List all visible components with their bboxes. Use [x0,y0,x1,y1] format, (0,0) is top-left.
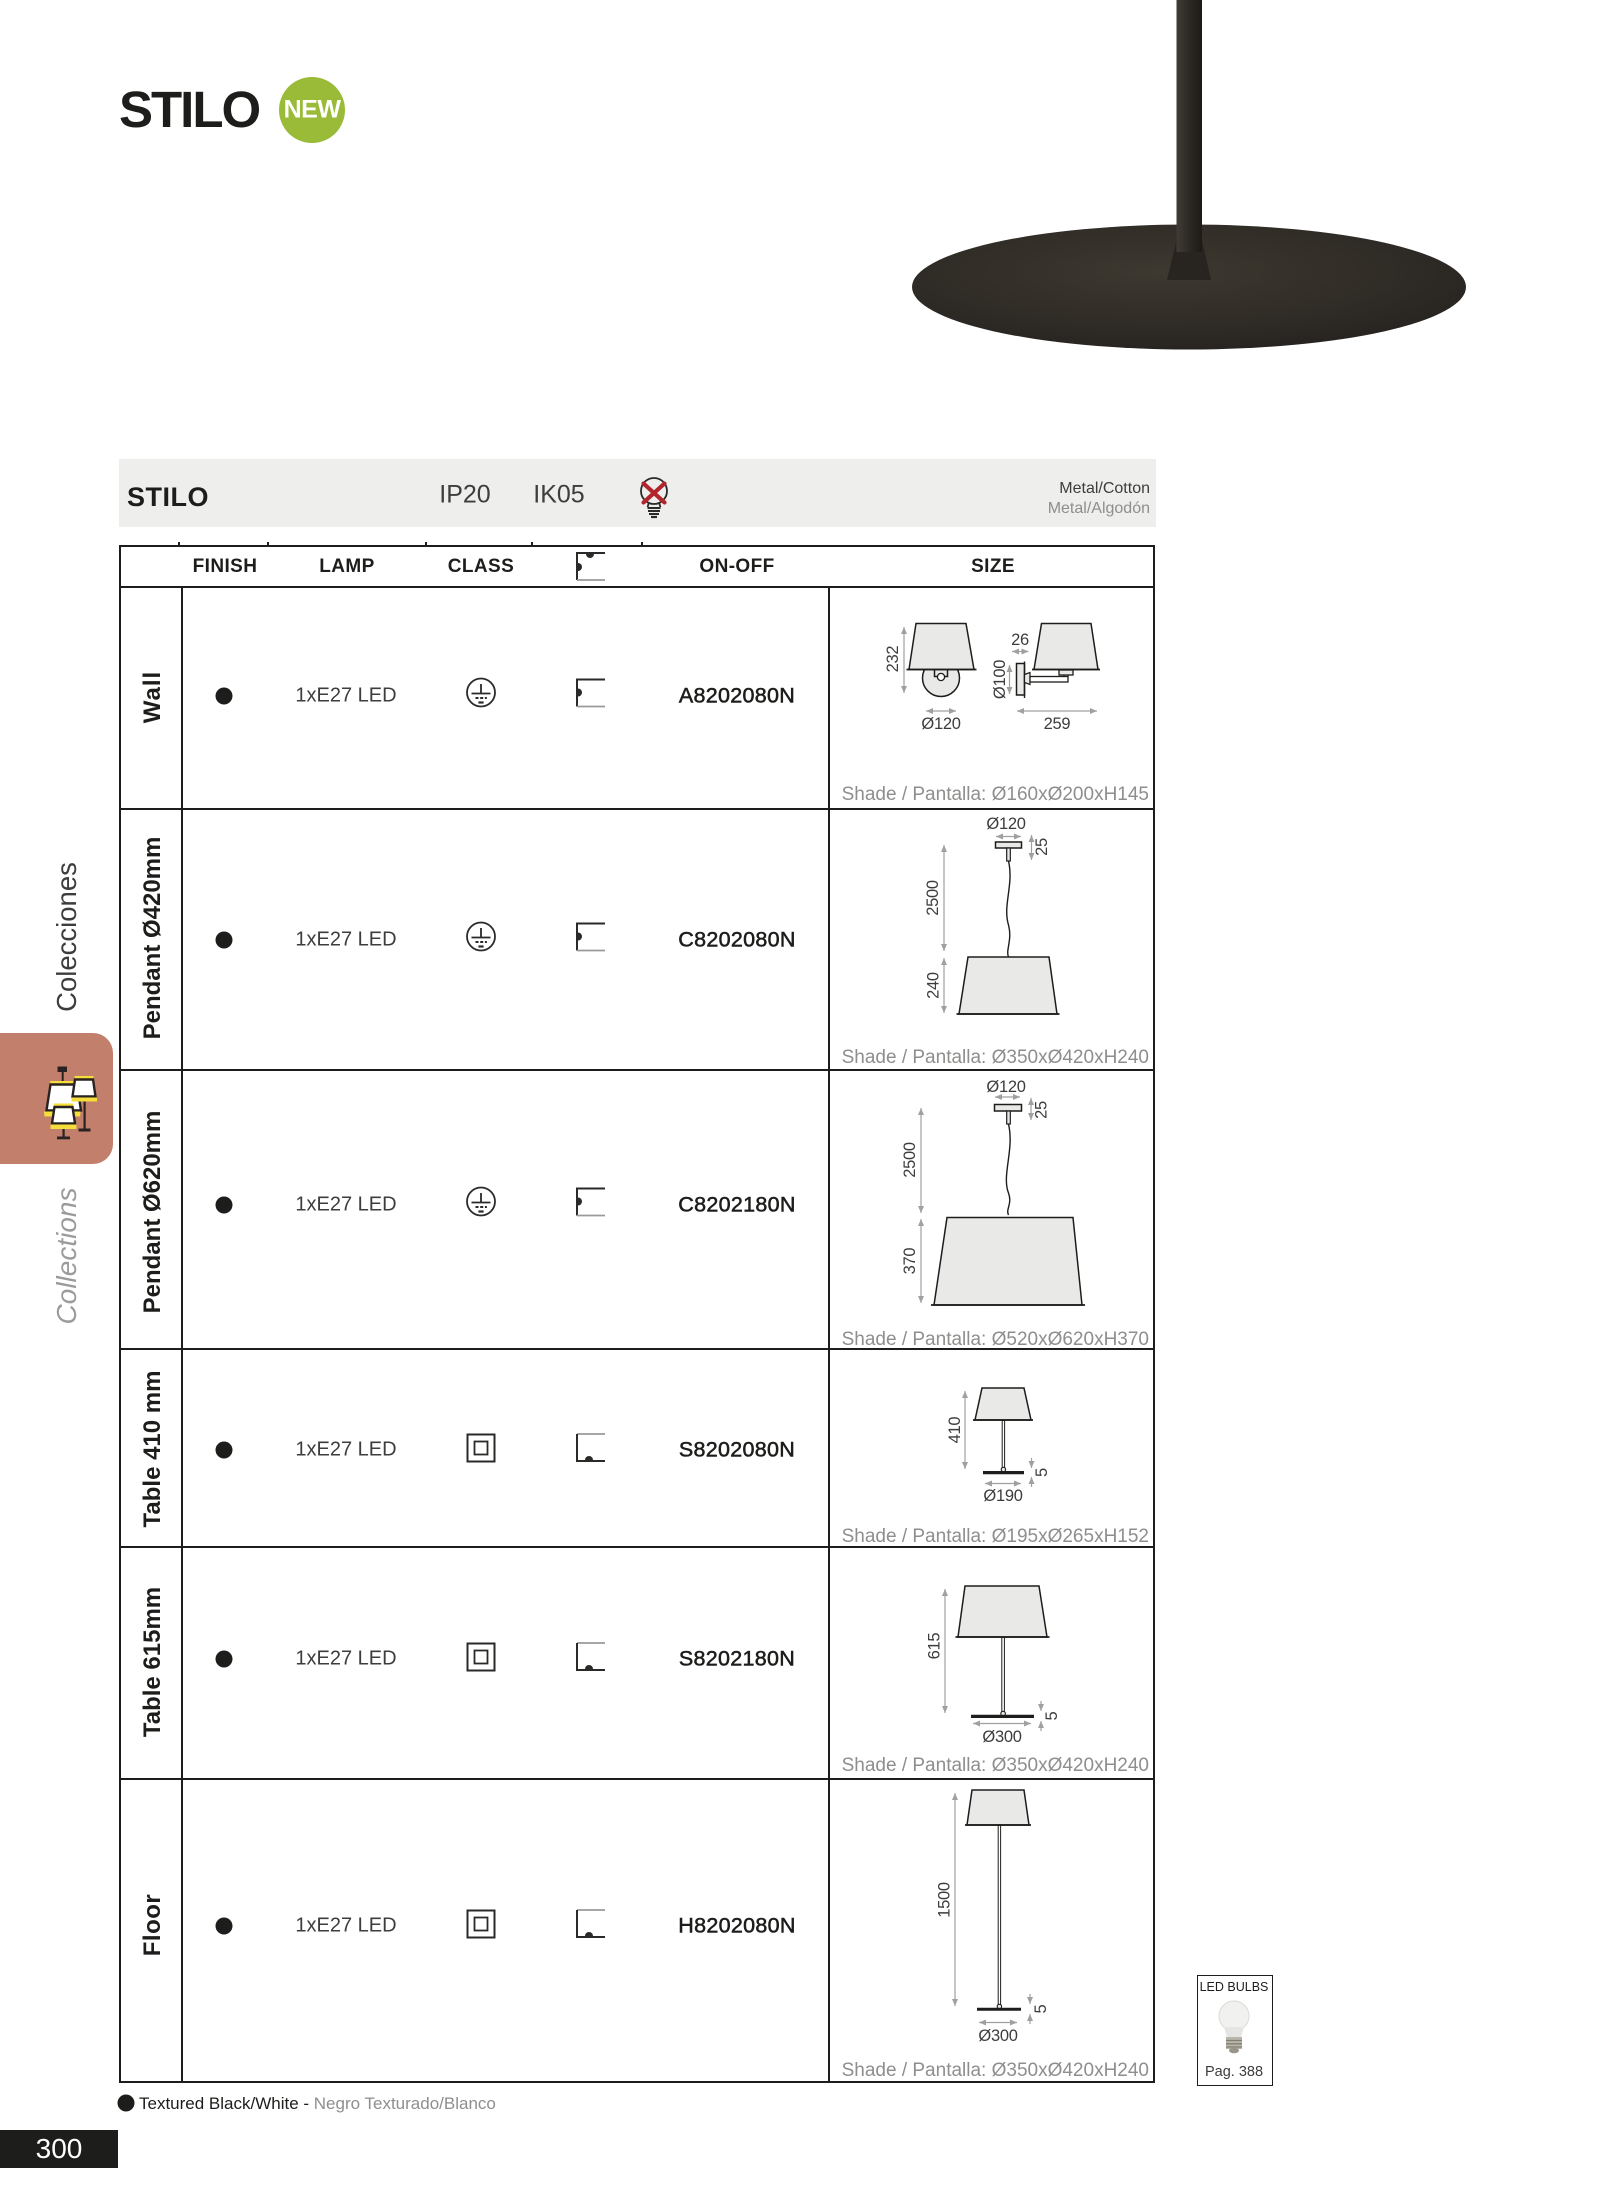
svg-text:232: 232 [884,646,902,673]
svg-text:Ø300: Ø300 [982,1728,1021,1746]
svg-text:2500: 2500 [924,880,942,916]
svg-text:2500: 2500 [901,1142,919,1178]
svg-text:25: 25 [1033,1101,1051,1119]
svg-text:240: 240 [925,972,943,999]
svg-text:5: 5 [1033,1468,1051,1477]
svg-text:370: 370 [901,1248,919,1275]
svg-text:5: 5 [1032,2004,1050,2013]
svg-text:5: 5 [1043,1711,1061,1720]
svg-text:Ø120: Ø120 [986,1078,1025,1096]
svg-text:26: 26 [1011,631,1029,649]
svg-text:Ø190: Ø190 [983,1487,1022,1505]
svg-text:615: 615 [926,1633,944,1660]
svg-text:Ø120: Ø120 [986,815,1025,833]
svg-text:410: 410 [946,1417,964,1444]
svg-text:25: 25 [1033,838,1051,856]
svg-text:1500: 1500 [936,1882,954,1918]
svg-text:Ø100: Ø100 [991,660,1009,699]
svg-text:Ø300: Ø300 [978,2027,1017,2045]
svg-text:259: 259 [1044,715,1071,733]
svg-text:Ø120: Ø120 [921,715,960,733]
